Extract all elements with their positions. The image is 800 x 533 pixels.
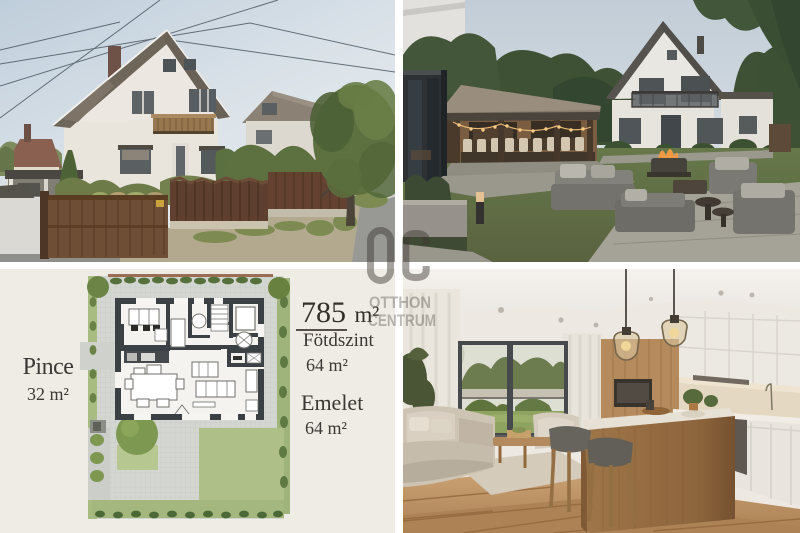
svg-text:OTTHON: OTTHON [369, 293, 431, 312]
svg-text:CENTRUM: CENTRUM [368, 311, 436, 330]
